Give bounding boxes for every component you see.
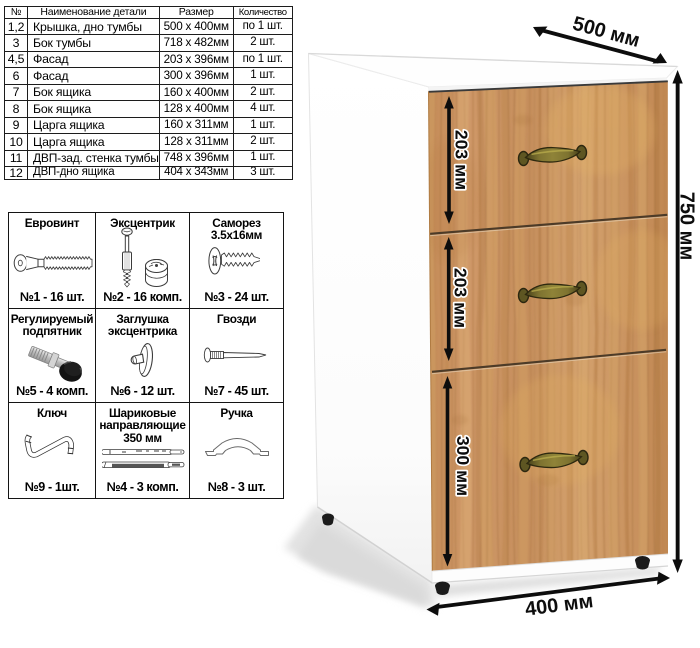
svg-text:750 мм: 750 мм bbox=[676, 192, 698, 261]
svg-text:203 мм: 203 мм bbox=[450, 268, 470, 328]
svg-text:300 мм: 300 мм bbox=[453, 436, 473, 496]
svg-text:203 мм: 203 мм bbox=[451, 130, 471, 190]
